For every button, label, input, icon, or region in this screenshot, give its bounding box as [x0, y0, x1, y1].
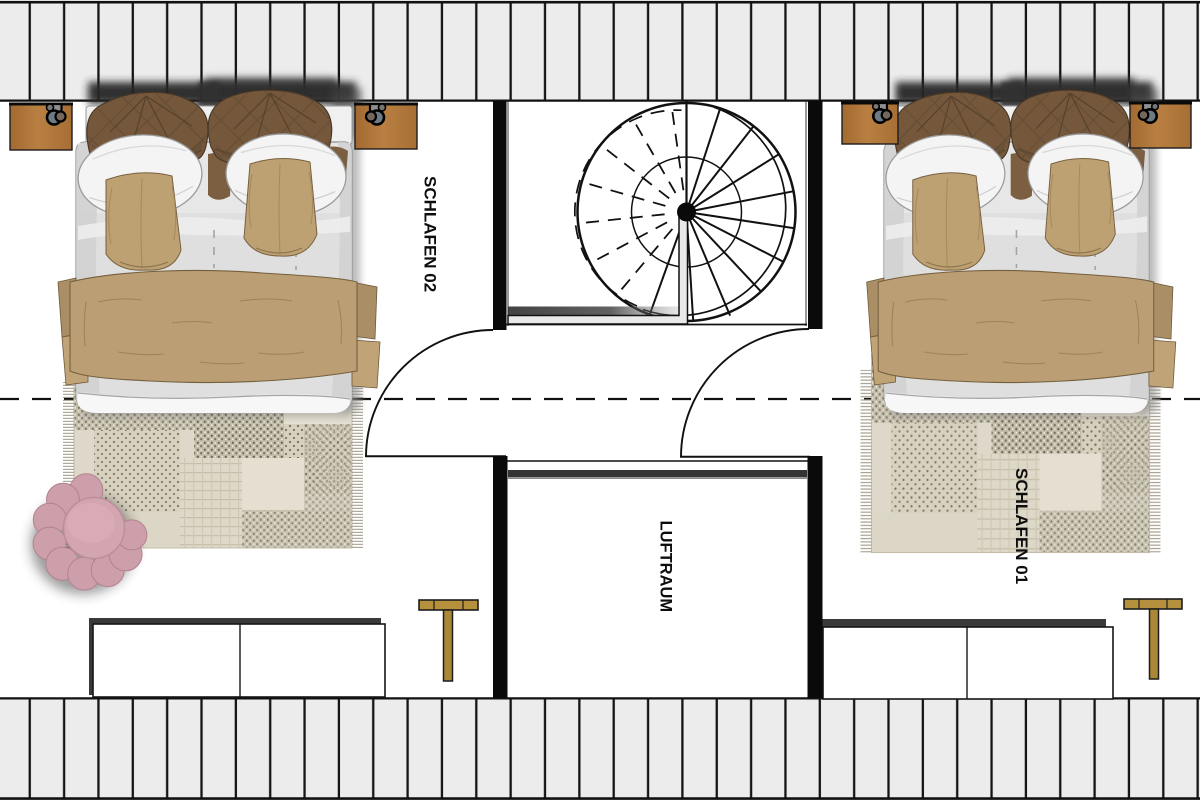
svg-text:LUFTRAUM: LUFTRAUM: [657, 521, 675, 613]
svg-text:SCHLAFEN 02: SCHLAFEN 02: [421, 176, 440, 292]
svg-text:SCHLAFEN 01: SCHLAFEN 01: [1012, 468, 1031, 584]
